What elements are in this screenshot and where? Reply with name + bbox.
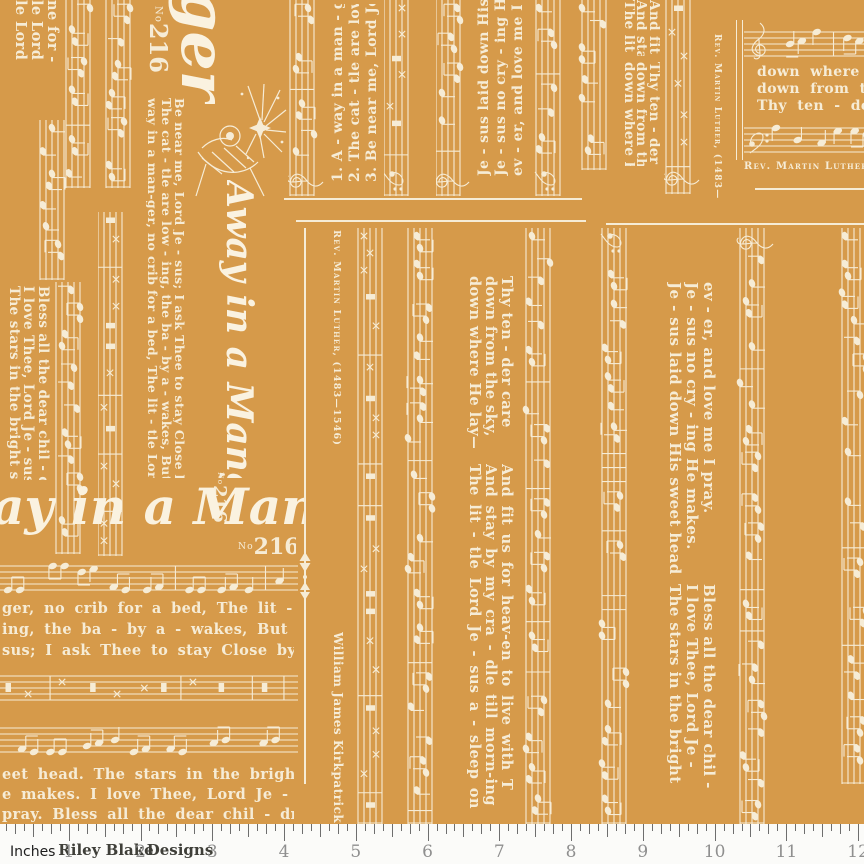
ruler-tick xyxy=(454,824,455,831)
ruler-tick xyxy=(293,824,294,831)
catalog-prefix: No xyxy=(238,541,254,552)
ruler-tick xyxy=(176,824,177,837)
ruler-tick xyxy=(257,824,258,831)
ruler-tick xyxy=(813,824,814,831)
ruler-tick xyxy=(634,824,635,831)
ruler-tick xyxy=(759,824,760,831)
ruler-tick xyxy=(123,824,124,834)
fabric-print: le Lordle Lordne for - No216 ger xyxy=(0,0,864,824)
ruler-tick xyxy=(15,824,16,834)
lyric-column-chorus-truncated: Je - sus laid down His sweet heaJe - sus… xyxy=(476,0,528,176)
rotated-content xyxy=(0,664,298,704)
ruler-tick xyxy=(87,824,88,834)
music-staff xyxy=(384,0,420,196)
ruler-tick xyxy=(248,824,249,837)
ruler-tick xyxy=(715,824,716,841)
lyric-line: The lit - tle Lord Je - sus a - sleep on xyxy=(466,464,482,824)
rotated-content xyxy=(400,228,444,824)
ruler-tick xyxy=(239,824,240,831)
rotated-content: down where He lay—down from the sky,Thy … xyxy=(622,62,660,166)
lyric-column-verse-numbers: 1. A - way in a man - ger,2. The cat - t… xyxy=(330,4,382,182)
ruler-tick xyxy=(69,824,70,841)
music-staff xyxy=(744,20,864,60)
lyric-line: I love Thee, Lord Je - xyxy=(683,584,700,824)
ruler-tick xyxy=(320,824,321,837)
ruler-tick xyxy=(212,824,213,841)
title-text: Away in a Manger xyxy=(218,180,260,478)
ruler-tick xyxy=(203,824,204,831)
ruler-tick xyxy=(347,824,348,831)
ruler-tick xyxy=(768,824,769,834)
ruler-number: 4 xyxy=(279,842,290,862)
rotated-content xyxy=(744,116,864,156)
ruler-tick xyxy=(499,824,500,841)
lyric-rows-lay-truncated: down where He ldown from the sThy ten - … xyxy=(757,64,864,116)
lyric-column-sleep: The lit - tle Lord Je - sus a - sleep on… xyxy=(466,464,514,824)
ruler-number: 12 xyxy=(847,842,864,862)
music-staff xyxy=(288,0,326,196)
star-icon xyxy=(249,117,271,139)
lyric-line: Bless all the dear chil - dren in xyxy=(35,286,50,480)
music-staff xyxy=(532,0,572,196)
rotated-content xyxy=(0,716,298,758)
rotated-content xyxy=(297,550,313,606)
rotated-content: The lit - tAnd stay bAnd fit xyxy=(622,0,660,56)
music-staff xyxy=(436,0,472,196)
lyric-line: down where He l xyxy=(757,64,864,81)
lyric-column-verse: way in a man-ger, no crib for a bed, The… xyxy=(146,98,186,478)
ruler-tick xyxy=(598,824,599,831)
ruler-tick xyxy=(571,824,572,841)
ruler-tick xyxy=(284,824,285,841)
ruler-tick xyxy=(490,824,491,831)
ruler-tick xyxy=(697,824,698,834)
music-staff xyxy=(838,228,864,784)
rotated-content xyxy=(592,228,638,824)
ruler-number: 2 xyxy=(135,842,146,862)
rotated-content: eet head. The stars in the bright sky lo… xyxy=(2,764,294,824)
ruler-tick xyxy=(625,824,626,834)
lyric-column-chorus: Je - sus laid down His sweet head.Je - s… xyxy=(666,282,718,576)
title-rule-vertical xyxy=(304,228,306,784)
ruler-tick xyxy=(329,824,330,831)
ruler-tick xyxy=(777,824,778,831)
ruler-tick xyxy=(562,824,563,831)
rotated-content xyxy=(755,188,864,190)
ruler-tick xyxy=(158,824,159,834)
rotated-content xyxy=(606,223,864,225)
ruler-tick xyxy=(616,824,617,831)
lyric-line: And stay b xyxy=(635,0,648,56)
rotated-content: Away in a Manger xyxy=(210,180,266,478)
rotated-content xyxy=(664,0,702,194)
ruler-number: 9 xyxy=(637,842,648,862)
ruler-tick xyxy=(302,824,303,834)
rule-ornament xyxy=(297,550,313,606)
composer-caption-vertical: Rev. Martin Luther, (1483—1546) xyxy=(328,230,344,482)
music-staff xyxy=(578,0,618,170)
lyric-line: The stars in the bright xyxy=(666,584,683,824)
ruler-number: 6 xyxy=(422,842,433,862)
ruler-tick xyxy=(392,824,393,837)
ruler-tick xyxy=(607,824,608,837)
ruler-tick xyxy=(526,824,527,831)
rotated-content: Je - sus laid down His sweet head.Je - s… xyxy=(666,282,718,576)
lyric-line: down from the sky, xyxy=(482,276,498,448)
rotated-content: le Lordle Lordne for - xyxy=(12,0,62,118)
arranger-name: William James Kirkpatrick xyxy=(329,632,346,824)
lyric-column-stars: The stars in the bright sky lookedI love… xyxy=(6,286,50,480)
lyric-line: ev - er, and love me I pra xyxy=(510,0,527,176)
music-staff xyxy=(0,554,298,594)
rotated-content xyxy=(354,228,394,824)
lyric-line: 3. Be near me, Lord Je - sus; xyxy=(364,4,381,182)
composer-caption-vertical: Rev. Martin Luther, (1483—1546) xyxy=(708,34,724,198)
rotated-content xyxy=(532,0,572,196)
ruler-tick xyxy=(105,824,106,837)
rotated-content: Rev. Martin Luther, (1483—1546) xyxy=(328,230,344,482)
rotated-content: 1. A - way in a man - ger,2. The cat - t… xyxy=(330,4,382,182)
lyric-line: Je - sus laid down His sweet head. xyxy=(666,282,683,576)
ruler-tick xyxy=(42,824,43,831)
rotated-content xyxy=(518,228,562,824)
lyric-rows-bottom-upper: ger, no crib for a bed, The lit - tle Lo… xyxy=(2,598,294,662)
rotated-content xyxy=(288,0,326,196)
ruler-tick xyxy=(446,824,447,834)
ruler-tick xyxy=(742,824,743,831)
music-staff xyxy=(36,120,76,280)
lyric-line: way in a man-ger, no crib for a bed, The… xyxy=(146,98,159,478)
ruler-tick xyxy=(221,824,222,831)
ruler-tick xyxy=(580,824,581,831)
rotated-content: Rev. Martin Luther, (148 xyxy=(744,161,864,176)
lyric-line: down where He lay— xyxy=(466,276,482,448)
ruler: Inches Riley Blake Designs 1234567891011… xyxy=(0,824,864,864)
rotated-content xyxy=(284,198,582,200)
rotated-content xyxy=(36,120,76,280)
ruler-tick xyxy=(661,824,662,834)
lyric-column-corner-fragment: le Lordle Lordne for - xyxy=(12,0,62,118)
lyric-line: le Lord xyxy=(12,0,28,118)
ruler-tick xyxy=(858,824,859,841)
lyric-line: down from the s xyxy=(757,81,864,98)
ruler-tick xyxy=(167,824,168,831)
ruler-number: 5 xyxy=(350,842,361,862)
caption-rule xyxy=(755,188,864,190)
ruler-tick xyxy=(724,824,725,831)
lyric-line: Bless all the dear chil - xyxy=(700,584,717,824)
system-left-border xyxy=(736,20,743,160)
music-staff xyxy=(744,116,864,156)
ruler-tick xyxy=(78,824,79,831)
rotated-content xyxy=(737,20,743,160)
ruler-tick xyxy=(230,824,231,834)
star-rays xyxy=(246,84,286,158)
composer-name: Rev. Martin Luther, (1483—1546) xyxy=(709,34,724,198)
ruler-tick xyxy=(141,824,142,841)
lyric-column-lay: down where He lay—down from the sky,Thy … xyxy=(466,276,514,448)
lyric-line: Thy ten - der c xyxy=(757,98,864,115)
ruler-tick xyxy=(96,824,97,831)
ruler-number: 7 xyxy=(494,842,505,862)
music-staff xyxy=(0,716,298,758)
music-staff xyxy=(354,228,394,824)
rotated-content: The stars in the bright sky lookedI love… xyxy=(6,286,50,480)
ruler-tick xyxy=(670,824,671,831)
ruler-tick xyxy=(401,824,402,831)
rotated-content: way in a man-ger, no crib for a bed, The… xyxy=(146,98,186,478)
rotated-content xyxy=(744,20,864,60)
music-staff xyxy=(400,228,444,824)
ruler-tick xyxy=(266,824,267,834)
lyric-line: pray. Bless all the dear chil - dren in xyxy=(2,804,294,824)
rotated-content xyxy=(436,0,472,196)
title-text: ay in a Manger xyxy=(0,477,304,536)
lyric-line: Thy ten - der care xyxy=(647,62,660,166)
lyric-line: 2. The cat - tle are low - ing, xyxy=(347,4,364,182)
ruler-tick xyxy=(428,824,429,841)
lyric-line: eet head. The stars in the bright sky lo… xyxy=(2,764,294,784)
rotated-content: Je - sus laid down His sweet heaJe - sus… xyxy=(476,0,528,176)
system-border-line xyxy=(296,220,586,222)
ruler-tick xyxy=(786,824,787,841)
rotated-content: The lit - tle Lord Je - sus a - sleep on… xyxy=(466,464,514,824)
rotated-content xyxy=(578,0,618,170)
ruler-tick xyxy=(275,824,276,831)
ruler-number: 8 xyxy=(566,842,577,862)
music-staff xyxy=(518,228,562,824)
ruler-tick xyxy=(132,824,133,831)
ruler-tick xyxy=(589,824,590,834)
composer-name: Rev. Martin Luther, (1483—1546) xyxy=(329,230,344,482)
ruler-tick xyxy=(795,824,796,831)
ruler-tick xyxy=(419,824,420,831)
lyric-line: le Lord xyxy=(28,0,44,118)
ruler-tick xyxy=(517,824,518,834)
lyric-line: The stars in the bright sky looked xyxy=(6,286,21,480)
lyric-line: ev - er, and love me I pray. xyxy=(700,282,717,576)
lyric-line: Je - sus no cry - ing He makes. xyxy=(683,282,700,576)
rotated-content: The stars in the brightI love Thee, Lord… xyxy=(666,584,718,824)
ruler-tick xyxy=(194,824,195,834)
ruler-number: 10 xyxy=(704,842,726,862)
ruler-tick xyxy=(338,824,339,834)
rotated-content xyxy=(0,554,298,594)
lyric-line: 1. A - way in a man - ger, xyxy=(330,4,347,182)
lyric-column-stars-truncated: The stars in the brightI love Thee, Lord… xyxy=(666,584,718,824)
lyric-line: sus; I ask Thee to stay Close by me for … xyxy=(2,640,294,661)
lyric-column-lit-fragment: The lit - tAnd stay bAnd fit xyxy=(622,0,660,56)
ruler-tick xyxy=(688,824,689,831)
ruler-tick xyxy=(311,824,312,831)
music-staff xyxy=(592,228,638,824)
ruler-tick xyxy=(652,824,653,831)
system-border-line xyxy=(606,223,864,225)
rotated-content: Rev. Martin Luther, (1483—1546) xyxy=(708,34,724,198)
rotated-content xyxy=(296,220,586,222)
ruler-tick xyxy=(481,824,482,834)
lyric-line: And stay by my cra - dle till morn-ing xyxy=(482,464,498,824)
ruler-tick xyxy=(6,824,7,831)
lyric-line: Je - sus laid down His sweet hea xyxy=(476,0,493,176)
ruler-tick xyxy=(383,824,384,831)
rotated-content: ger, no crib for a bed, The lit - tle Lo… xyxy=(2,598,294,662)
ruler-tick xyxy=(374,824,375,834)
ruler-tick xyxy=(185,824,186,831)
lyric-line: The cat - tle are low - ing, the ba - by… xyxy=(159,98,172,478)
ruler-tick xyxy=(706,824,707,831)
lyric-line: I love Thee, Lord Je - sus! look xyxy=(21,286,36,480)
lyric-line: Be near me, Lord Je - sus; I ask Thee to… xyxy=(173,98,186,478)
lyric-line: ne for - xyxy=(44,0,60,118)
lyric-line: Je - sus no cry - ing He mak xyxy=(493,0,510,176)
ruler-tick xyxy=(472,824,473,831)
system-border-line xyxy=(284,198,582,200)
ruler-tick xyxy=(356,824,357,841)
ruler-number: 1 xyxy=(63,842,74,862)
ruler-tick xyxy=(831,824,832,831)
lyric-line: And fit xyxy=(647,0,660,56)
ruler-tick xyxy=(508,824,509,831)
ruler-tick xyxy=(463,824,464,837)
music-staff xyxy=(0,664,298,704)
ruler-tick xyxy=(33,824,34,837)
lyric-line: e makes. I love Thee, Lord Je - sus! loo… xyxy=(2,784,294,804)
composer-caption: Rev. Martin Luther, (148 xyxy=(744,161,864,176)
lyric-line: The lit - t xyxy=(622,0,635,56)
ruler-tick xyxy=(544,824,545,831)
ruler-tick xyxy=(410,824,411,834)
rotated-content: down where He lay—down from the sky,Thy … xyxy=(466,276,514,448)
rotated-content xyxy=(384,0,420,196)
lyric-line: down where He lay— xyxy=(622,62,635,166)
lyric-line: ing, the ba - by a - wakes, But lit - tl… xyxy=(2,619,294,640)
ruler-number: 11 xyxy=(776,842,798,862)
ruler-tick xyxy=(365,824,366,831)
ruler-tick xyxy=(849,824,850,831)
ruler-tick xyxy=(733,824,734,834)
rotated-content: down where He ldown from the sThy ten - … xyxy=(757,64,864,116)
ruler-tick xyxy=(804,824,805,834)
lyric-line: down from the sky, xyxy=(635,62,648,166)
rotated-content xyxy=(838,228,864,784)
rotated-content xyxy=(304,228,306,784)
ruler-tick xyxy=(840,824,841,834)
ruler-tick xyxy=(437,824,438,831)
lyric-rows-bottom-lower: eet head. The stars in the bright sky lo… xyxy=(2,764,294,824)
ruler-number: 3 xyxy=(207,842,218,862)
rotated-content xyxy=(728,228,776,824)
lyric-line: ger, no crib for a bed, The lit - tle Lo… xyxy=(2,598,294,619)
ruler-tick xyxy=(643,824,644,841)
arranger-caption-vertical: William James Kirkpatrick xyxy=(328,632,346,824)
lyric-line: And fit us for heav-en to live with T xyxy=(498,464,514,824)
rotated-content: ay in a Manger xyxy=(0,476,304,540)
ruler-tick xyxy=(679,824,680,837)
lyric-line: Thy ten - der care xyxy=(498,276,514,448)
ruler-tick xyxy=(114,824,115,831)
ruler-tick xyxy=(60,824,61,831)
ruler-tick xyxy=(750,824,751,837)
title-script-horizontal: ay in a Manger xyxy=(0,476,304,540)
ruler-tick xyxy=(149,824,150,831)
ruler-unit-label: Inches xyxy=(10,844,55,860)
music-staff xyxy=(664,0,702,194)
title-script-vertical: Away in a Manger xyxy=(210,180,266,478)
ruler-tick xyxy=(24,824,25,831)
ruler-tick xyxy=(535,824,536,837)
composer-name: Rev. Martin Luther, (148 xyxy=(744,161,864,172)
ruler-tick xyxy=(822,824,823,837)
ruler-tick xyxy=(51,824,52,834)
ruler-brand-word: Designs xyxy=(147,841,214,859)
ruler-tick xyxy=(553,824,554,834)
music-staff xyxy=(728,228,776,824)
rotated-content: William James Kirkpatrick xyxy=(328,632,346,824)
fabric-swatch: le Lordle Lordne for - No216 ger xyxy=(0,0,864,864)
lyric-column-lay: down where He lay—down from the sky,Thy … xyxy=(622,62,660,166)
